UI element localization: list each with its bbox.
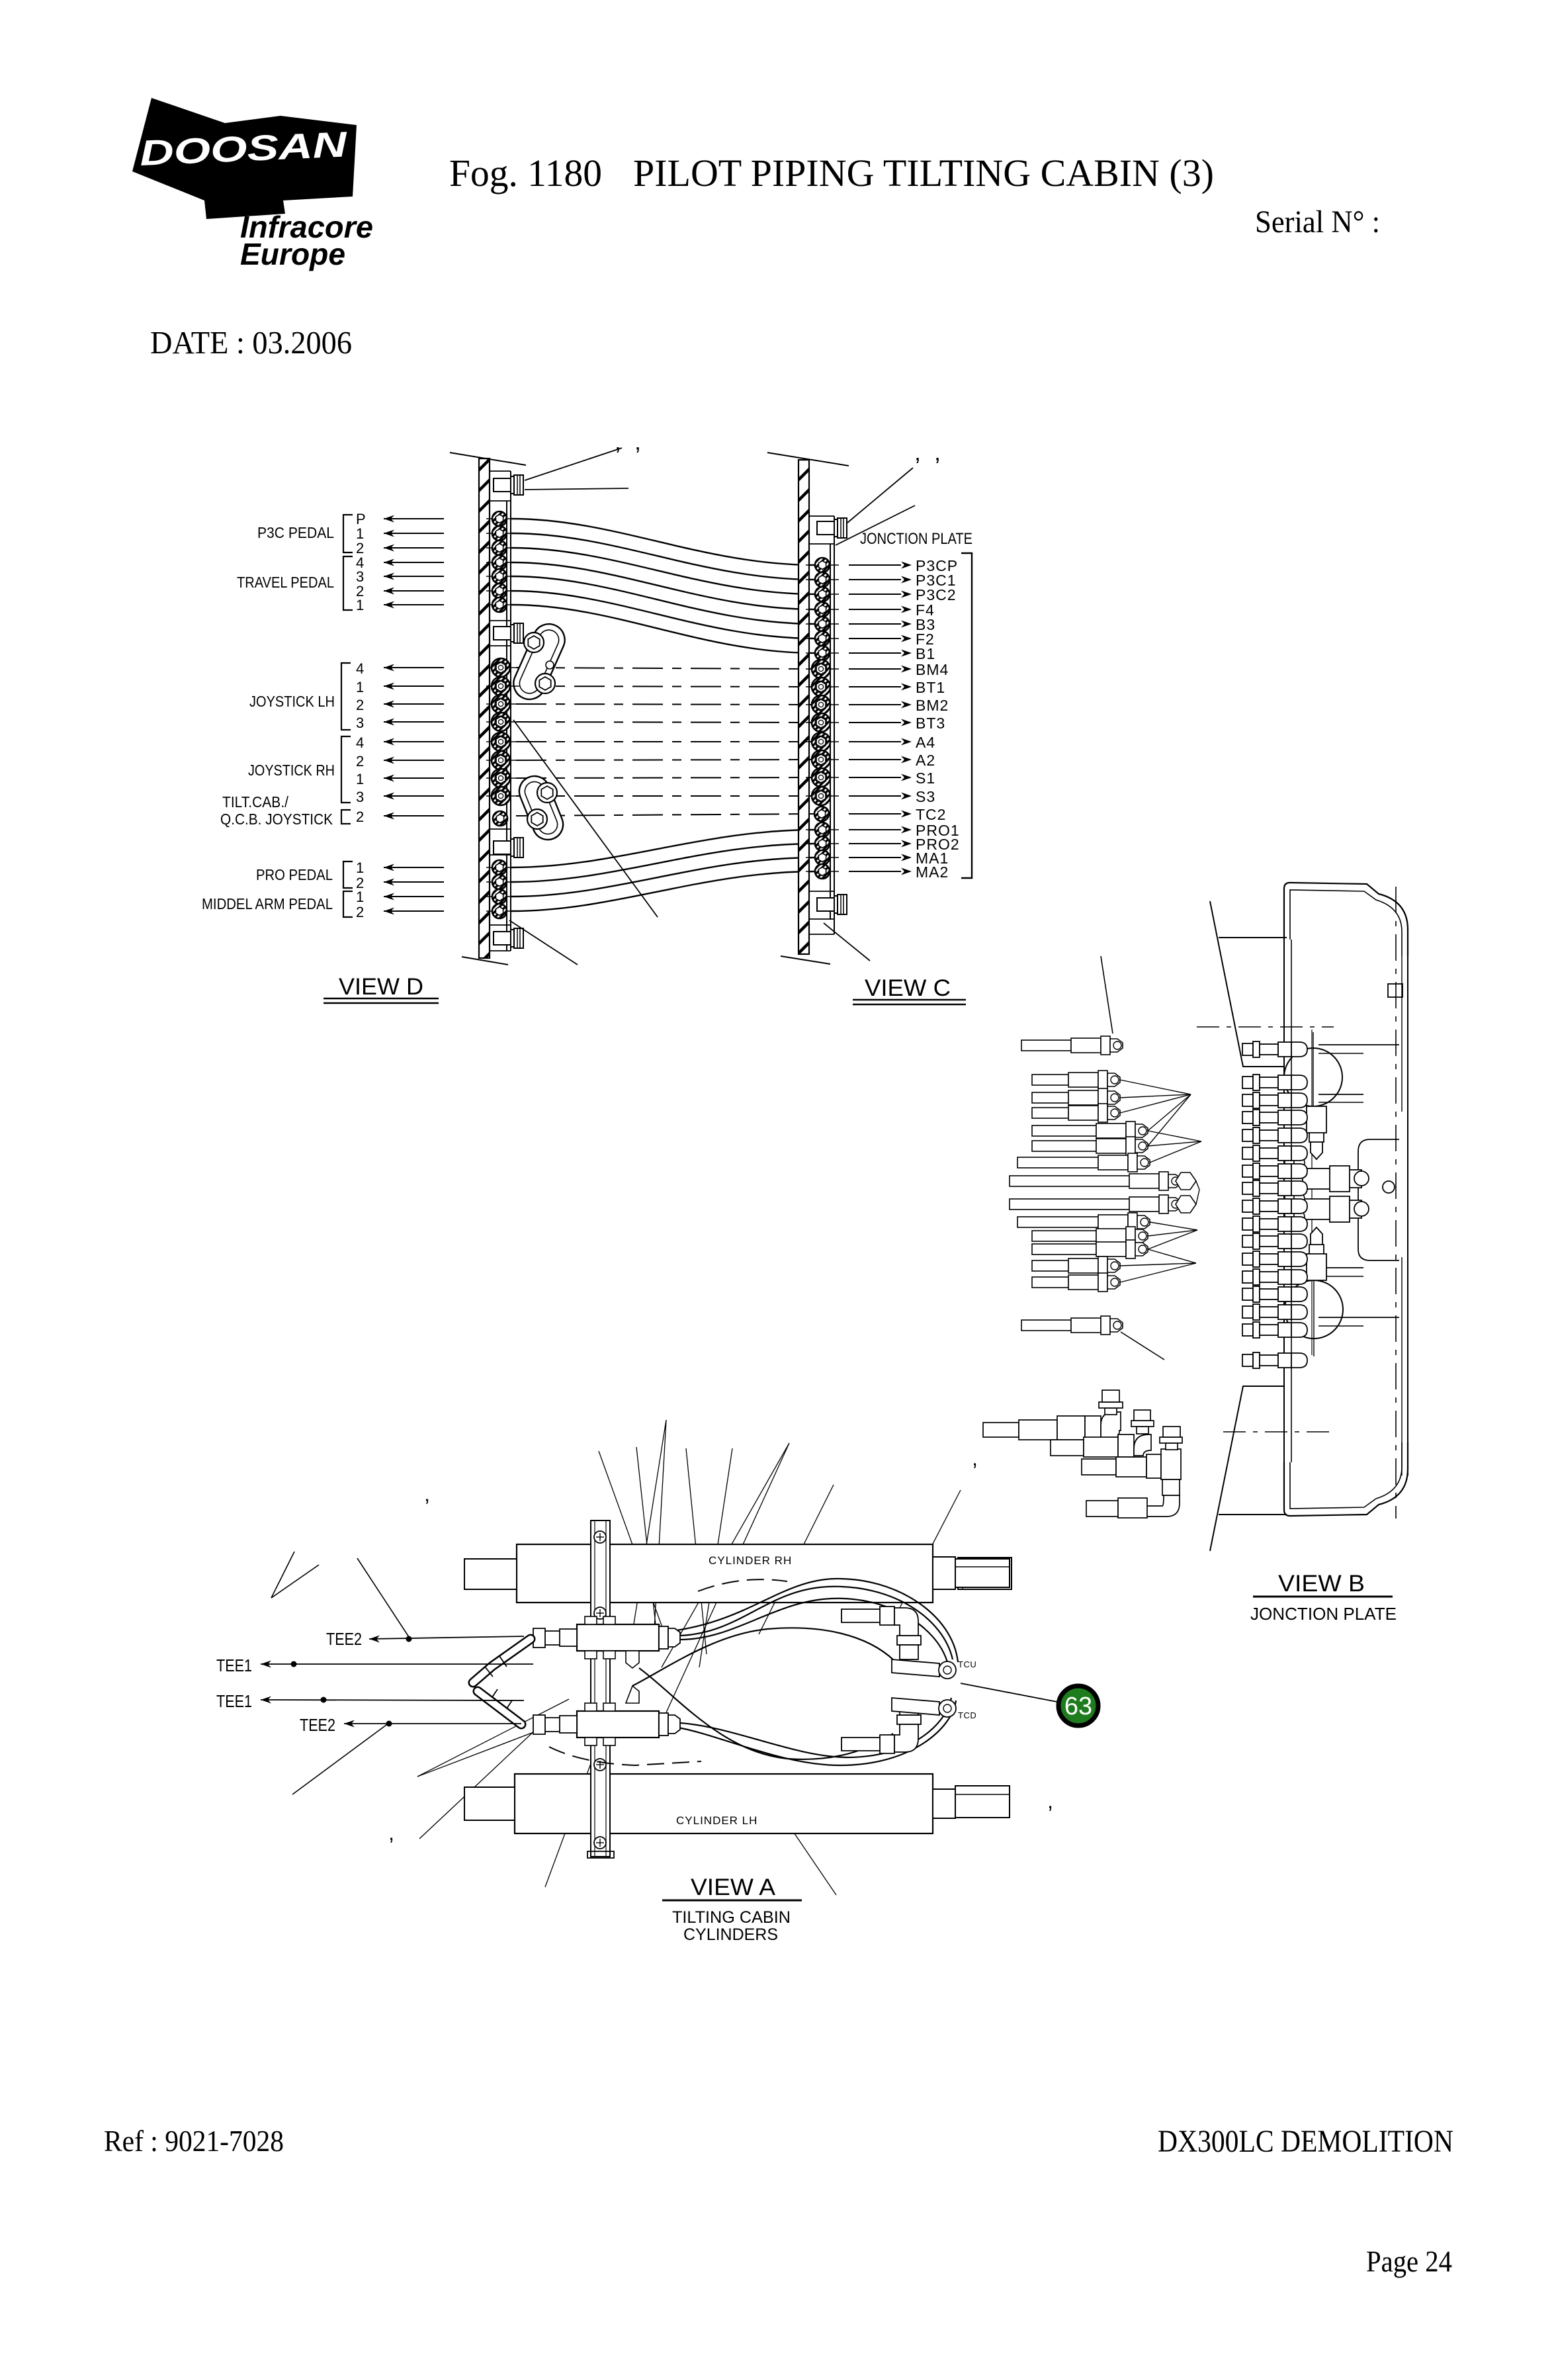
svg-text:S3: S3 xyxy=(916,788,935,805)
svg-text:’: ’ xyxy=(615,442,621,469)
svg-text:CYLINDERS: CYLINDERS xyxy=(683,1925,778,1944)
svg-text:CYLINDER RH: CYLINDER RH xyxy=(709,1554,792,1567)
svg-text:TEE2: TEE2 xyxy=(326,1629,362,1649)
svg-text:DATE : 03.2006: DATE : 03.2006 xyxy=(150,324,352,361)
svg-text:3: 3 xyxy=(356,789,364,805)
svg-text:’: ’ xyxy=(972,1459,977,1483)
svg-text:TILT.CAB./: TILT.CAB./ xyxy=(222,793,289,811)
svg-text:BT1: BT1 xyxy=(916,679,945,696)
svg-text:DX300LC DEMOLITION: DX300LC DEMOLITION xyxy=(1158,2124,1453,2159)
svg-text:P3C PEDAL: P3C PEDAL xyxy=(257,524,334,541)
svg-text:1: 1 xyxy=(356,859,364,876)
svg-text:TEE1: TEE1 xyxy=(216,1655,252,1675)
svg-text:A4: A4 xyxy=(916,734,935,751)
svg-text:VIEW C: VIEW C xyxy=(865,975,951,1001)
svg-text:2: 2 xyxy=(356,753,364,770)
svg-text:PRO PEDAL: PRO PEDAL xyxy=(256,866,333,883)
svg-text:TCD: TCD xyxy=(958,1710,976,1720)
svg-text:’: ’ xyxy=(425,1495,429,1519)
svg-text:’: ’ xyxy=(389,1833,394,1857)
svg-text:’: ’ xyxy=(635,442,640,469)
svg-text:Europe: Europe xyxy=(240,237,345,271)
svg-text:’: ’ xyxy=(935,453,940,480)
svg-text:3: 3 xyxy=(356,715,364,731)
svg-text:2: 2 xyxy=(356,904,364,920)
svg-text:4: 4 xyxy=(356,734,364,751)
svg-text:2: 2 xyxy=(356,697,364,713)
svg-text:TEE1: TEE1 xyxy=(216,1691,252,1711)
svg-text:JONCTION PLATE: JONCTION PLATE xyxy=(860,530,972,548)
svg-text:1: 1 xyxy=(356,679,364,695)
svg-text:Ref : 9021-7028: Ref : 9021-7028 xyxy=(104,2124,284,2158)
svg-text:JOYSTICK RH: JOYSTICK RH xyxy=(248,762,335,779)
svg-text:TILTING CABIN: TILTING CABIN xyxy=(672,1908,791,1927)
svg-text:2: 2 xyxy=(356,809,364,825)
svg-text:BT3: BT3 xyxy=(916,715,945,732)
svg-text:A2: A2 xyxy=(916,752,935,769)
svg-text:MA2: MA2 xyxy=(916,863,949,881)
svg-text:BM2: BM2 xyxy=(916,697,949,714)
svg-text:’: ’ xyxy=(915,453,920,480)
svg-text:1: 1 xyxy=(356,597,364,613)
svg-text:TC2: TC2 xyxy=(916,806,946,823)
svg-text:’: ’ xyxy=(1048,1802,1053,1826)
svg-text:VIEW A: VIEW A xyxy=(691,1874,776,1900)
svg-text:TEE2: TEE2 xyxy=(300,1715,335,1735)
svg-text:BM4: BM4 xyxy=(916,661,949,678)
svg-text:B1: B1 xyxy=(916,645,935,662)
svg-text:TCU: TCU xyxy=(958,1659,976,1669)
svg-text:1: 1 xyxy=(356,889,364,905)
svg-text:Q.C.B. JOYSTICK: Q.C.B. JOYSTICK xyxy=(220,811,333,828)
svg-text:Page 24: Page 24 xyxy=(1366,2245,1452,2278)
svg-text:VIEW D: VIEW D xyxy=(339,974,423,1000)
svg-text:1: 1 xyxy=(356,771,364,787)
svg-text:MIDDEL ARM PEDAL: MIDDEL ARM PEDAL xyxy=(202,895,333,912)
svg-text:S1: S1 xyxy=(916,770,935,787)
svg-text:4: 4 xyxy=(356,660,364,677)
svg-text:TRAVEL PEDAL: TRAVEL PEDAL xyxy=(237,574,334,591)
svg-text:JOYSTICK LH: JOYSTICK LH xyxy=(249,693,335,710)
svg-text:PILOT PIPING TILTING CABIN (3): PILOT PIPING TILTING CABIN (3) xyxy=(633,152,1214,195)
svg-text:63: 63 xyxy=(1064,1693,1092,1720)
svg-text:Serial N° :: Serial N° : xyxy=(1255,204,1380,240)
svg-text:VIEW B: VIEW B xyxy=(1278,1571,1365,1597)
svg-text:Fog. 1180: Fog. 1180 xyxy=(449,152,602,195)
svg-text:JONCTION PLATE: JONCTION PLATE xyxy=(1250,1604,1397,1624)
svg-text:CYLINDER LH: CYLINDER LH xyxy=(676,1814,757,1827)
